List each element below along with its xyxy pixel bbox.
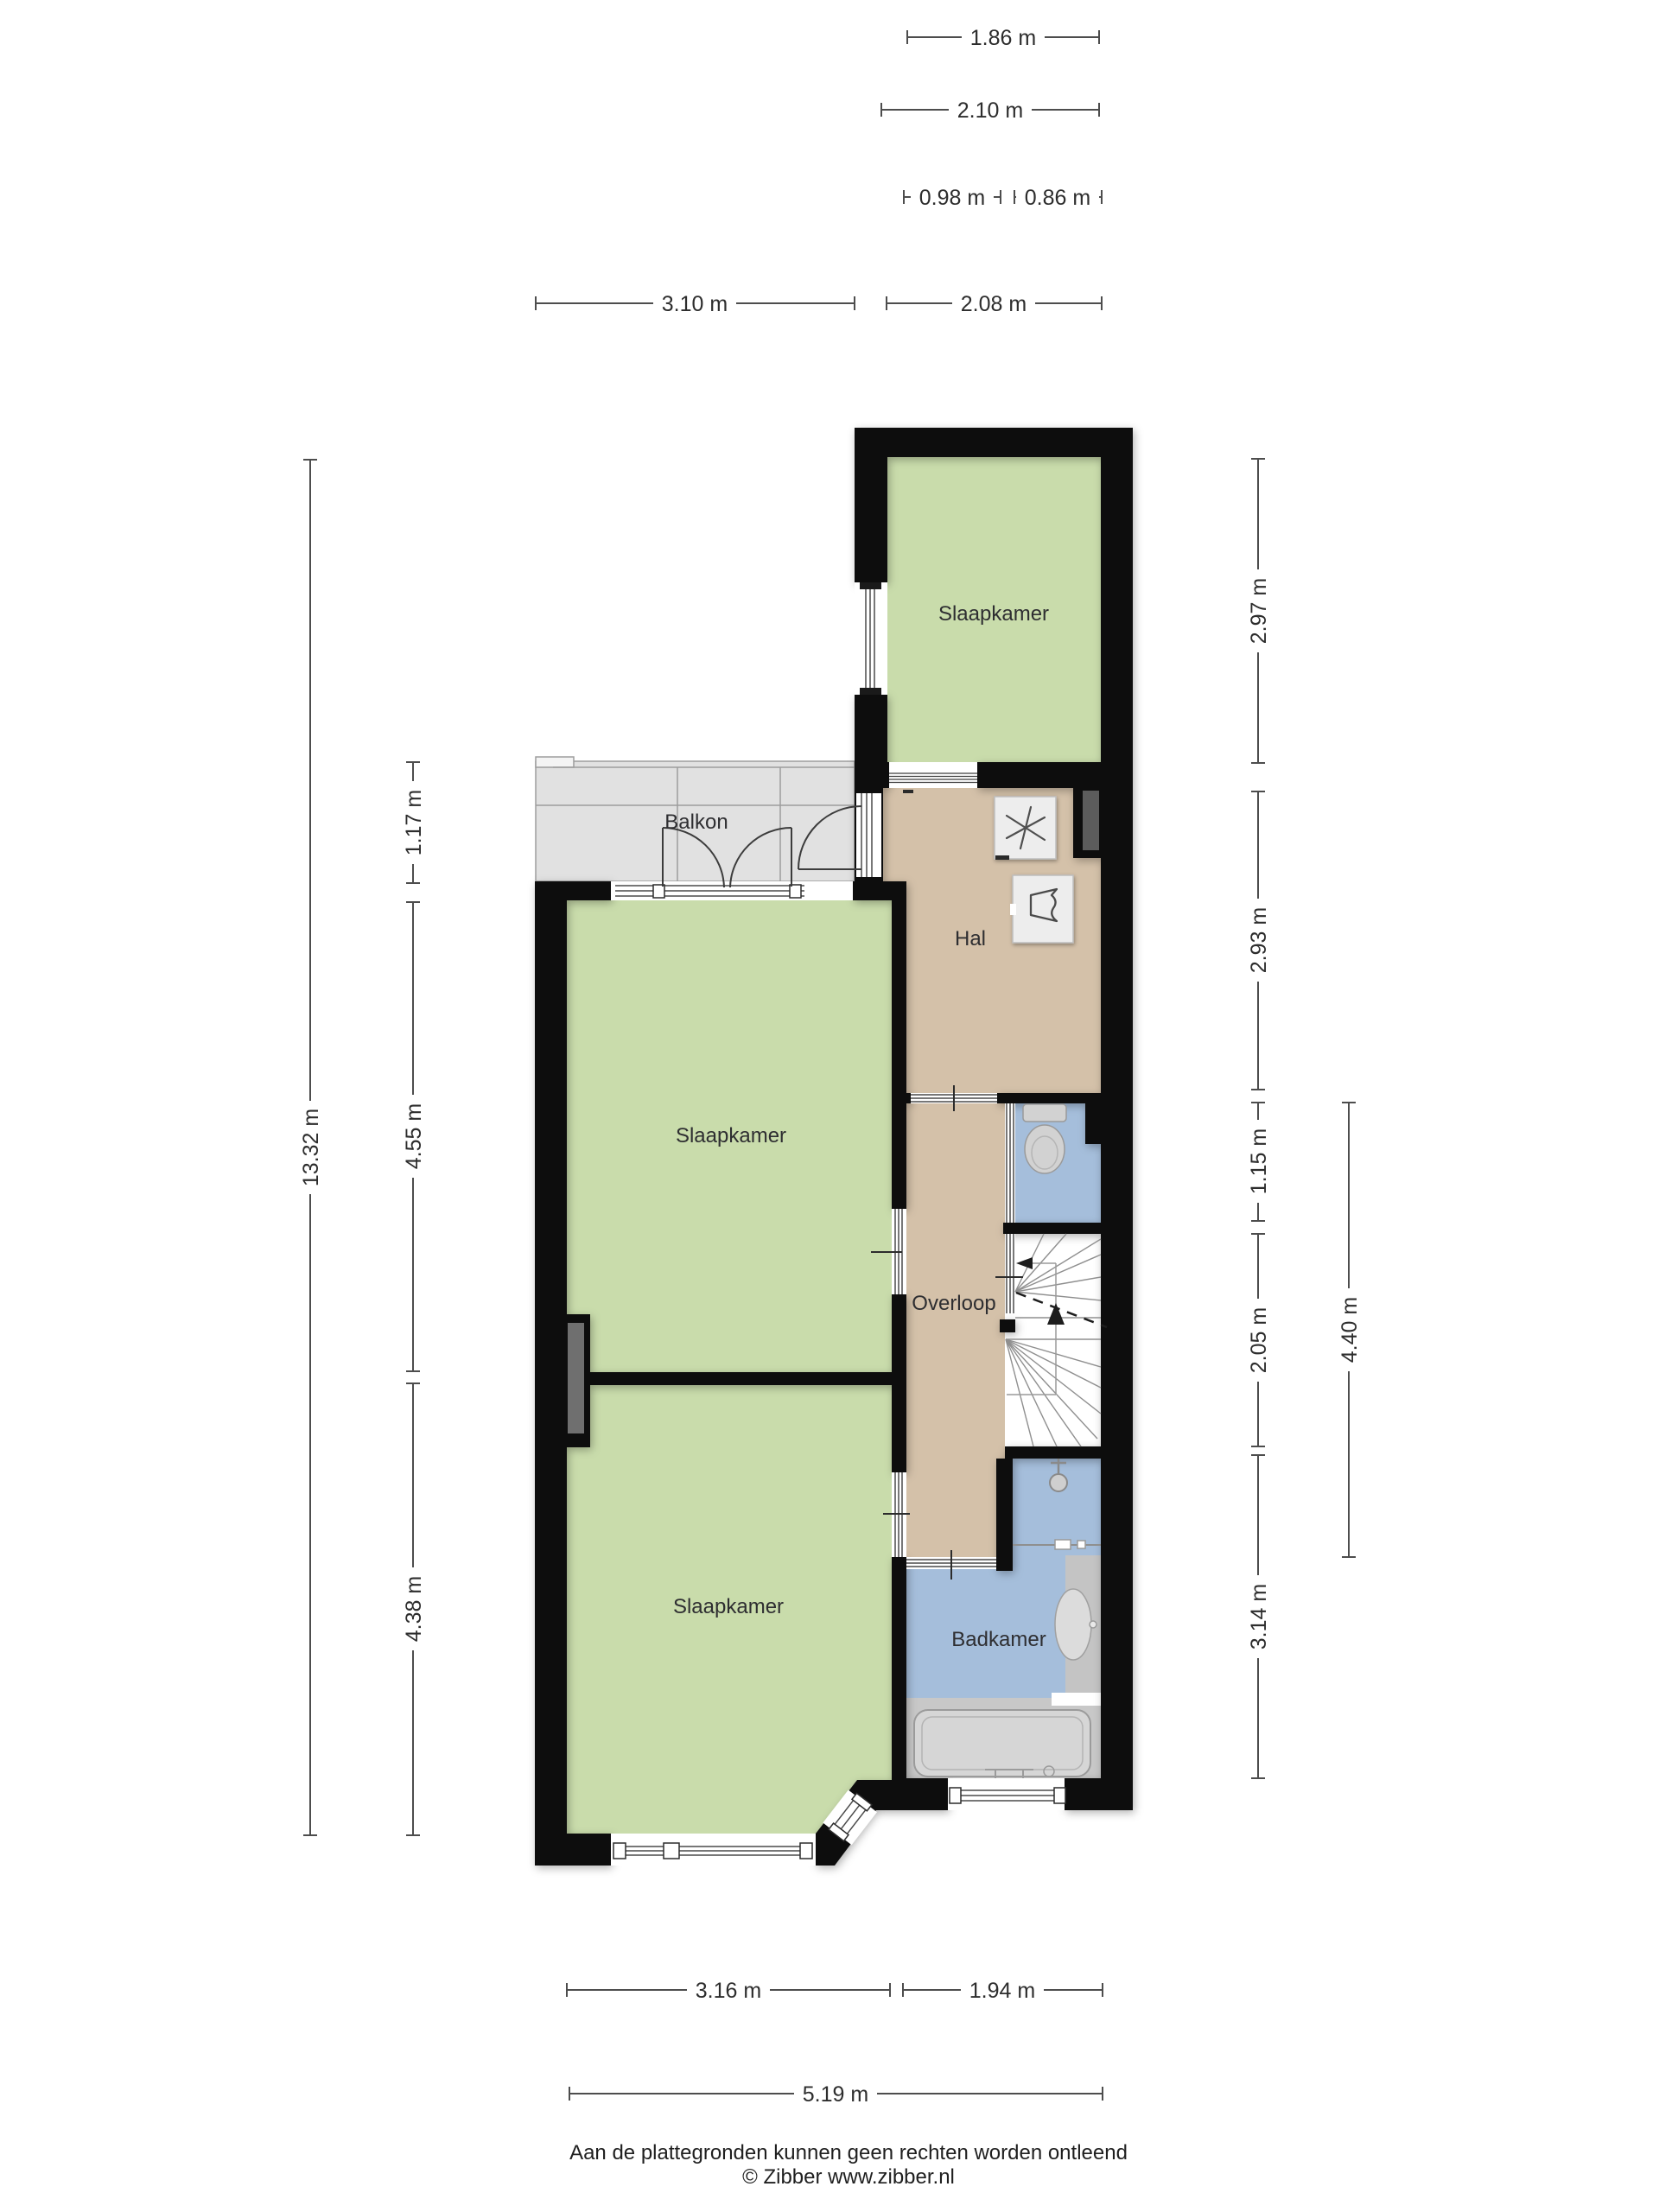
svg-text:4.40 m: 4.40 m <box>1338 1297 1362 1363</box>
svg-text:2.08 m: 2.08 m <box>961 292 1027 316</box>
svg-text:© Zibber www.zibber.nl: © Zibber www.zibber.nl <box>742 2165 955 2189</box>
svg-text:Badkamer: Badkamer <box>951 1628 1046 1651</box>
svg-text:3.10 m: 3.10 m <box>662 292 728 316</box>
svg-text:Slaapkamer: Slaapkamer <box>676 1124 786 1147</box>
svg-text:2.05 m: 2.05 m <box>1247 1307 1271 1373</box>
svg-text:4.55 m: 4.55 m <box>402 1103 426 1169</box>
svg-text:Slaapkamer: Slaapkamer <box>938 602 1049 626</box>
svg-text:Hal: Hal <box>955 927 986 950</box>
svg-text:5.19 m: 5.19 m <box>803 2082 868 2107</box>
svg-text:2.93 m: 2.93 m <box>1247 907 1271 973</box>
svg-text:Overloop: Overloop <box>912 1292 995 1315</box>
svg-text:3.14 m: 3.14 m <box>1247 1584 1271 1649</box>
svg-text:Slaapkamer: Slaapkamer <box>673 1595 784 1618</box>
svg-text:0.86 m: 0.86 m <box>1025 186 1090 210</box>
svg-text:1.15 m: 1.15 m <box>1247 1128 1271 1194</box>
svg-text:Aan de plattegronden kunnen ge: Aan de plattegronden kunnen geen rechten… <box>569 2141 1128 2164</box>
svg-text:2.10 m: 2.10 m <box>957 99 1023 123</box>
svg-text:1.17 m: 1.17 m <box>402 790 426 855</box>
svg-text:Balkon: Balkon <box>664 810 728 834</box>
svg-text:1.86 m: 1.86 m <box>970 26 1036 50</box>
svg-text:1.94 m: 1.94 m <box>969 1979 1035 2003</box>
svg-text:13.32 m: 13.32 m <box>299 1109 323 1186</box>
svg-text:2.97 m: 2.97 m <box>1247 578 1271 644</box>
svg-text:4.38 m: 4.38 m <box>402 1576 426 1642</box>
svg-text:0.98 m: 0.98 m <box>919 186 985 210</box>
svg-text:3.16 m: 3.16 m <box>696 1979 761 2003</box>
